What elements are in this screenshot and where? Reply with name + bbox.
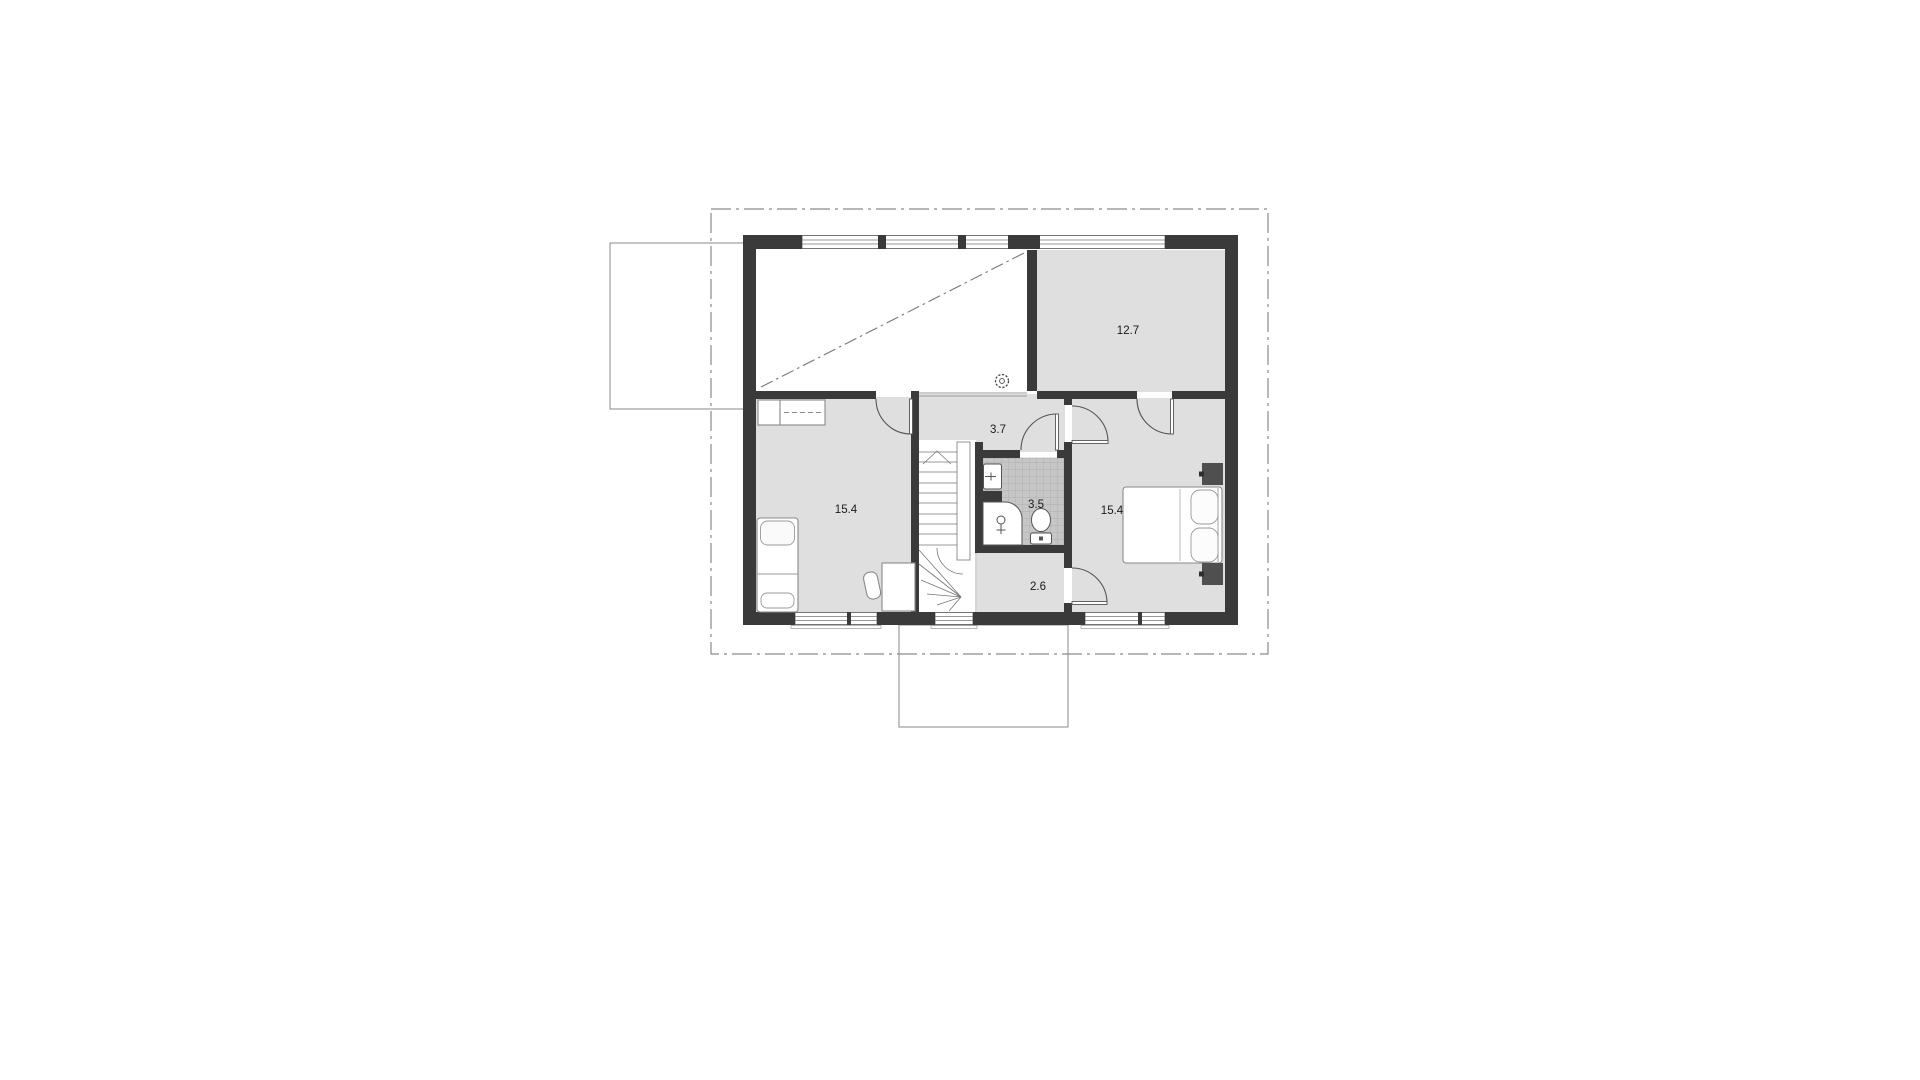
window-pier xyxy=(878,235,886,249)
window-top-band xyxy=(802,236,1165,249)
toilet-icon xyxy=(1031,509,1052,545)
room-area-label-hall-lower: 2.6 xyxy=(1030,581,1046,593)
ceiling-fan-icon xyxy=(996,375,1009,388)
sink-icon xyxy=(984,464,1002,489)
bed-single xyxy=(757,518,798,612)
room-area-label-bedroom-left: 15.4 xyxy=(835,504,858,516)
room-area-label-bedroom-right: 15.4 xyxy=(1101,505,1124,517)
stair-handrail xyxy=(957,442,970,560)
bottom-annex-outline xyxy=(899,625,1068,727)
void-diagonal-line xyxy=(761,253,1024,387)
room-area-label-dressing: 12.7 xyxy=(1117,325,1139,337)
pillow xyxy=(761,521,795,545)
nightstand xyxy=(1202,463,1223,485)
window-mullion xyxy=(1138,612,1142,625)
pillow xyxy=(1191,490,1218,524)
room-area-label-bathroom: 3.5 xyxy=(1028,499,1044,511)
window-bottom-left xyxy=(791,613,881,629)
bath-half-wall xyxy=(983,491,1002,502)
window-bottom-right xyxy=(1081,613,1169,629)
window-bottom-stair xyxy=(931,613,977,629)
left-annex-outline xyxy=(610,243,745,409)
floor-plan-drawing: 12.7 3.7 15.4 3.5 15.4 2.6 xyxy=(0,0,1920,1080)
floor-plan-page: 12.7 3.7 15.4 3.5 15.4 2.6 xyxy=(0,0,1920,1080)
nightstand xyxy=(1202,563,1223,585)
room-area-label-hall: 3.7 xyxy=(990,424,1006,436)
bed-double xyxy=(1123,487,1222,563)
dressing-room-floor xyxy=(1037,250,1225,392)
hall-lower-floor xyxy=(977,553,1064,612)
shower-icon xyxy=(983,502,1022,545)
closet xyxy=(758,400,825,425)
desk xyxy=(882,563,915,611)
window-pier xyxy=(958,235,966,249)
pillow xyxy=(1191,528,1218,562)
gallery-void xyxy=(761,253,1027,396)
window-mullion xyxy=(847,612,851,625)
